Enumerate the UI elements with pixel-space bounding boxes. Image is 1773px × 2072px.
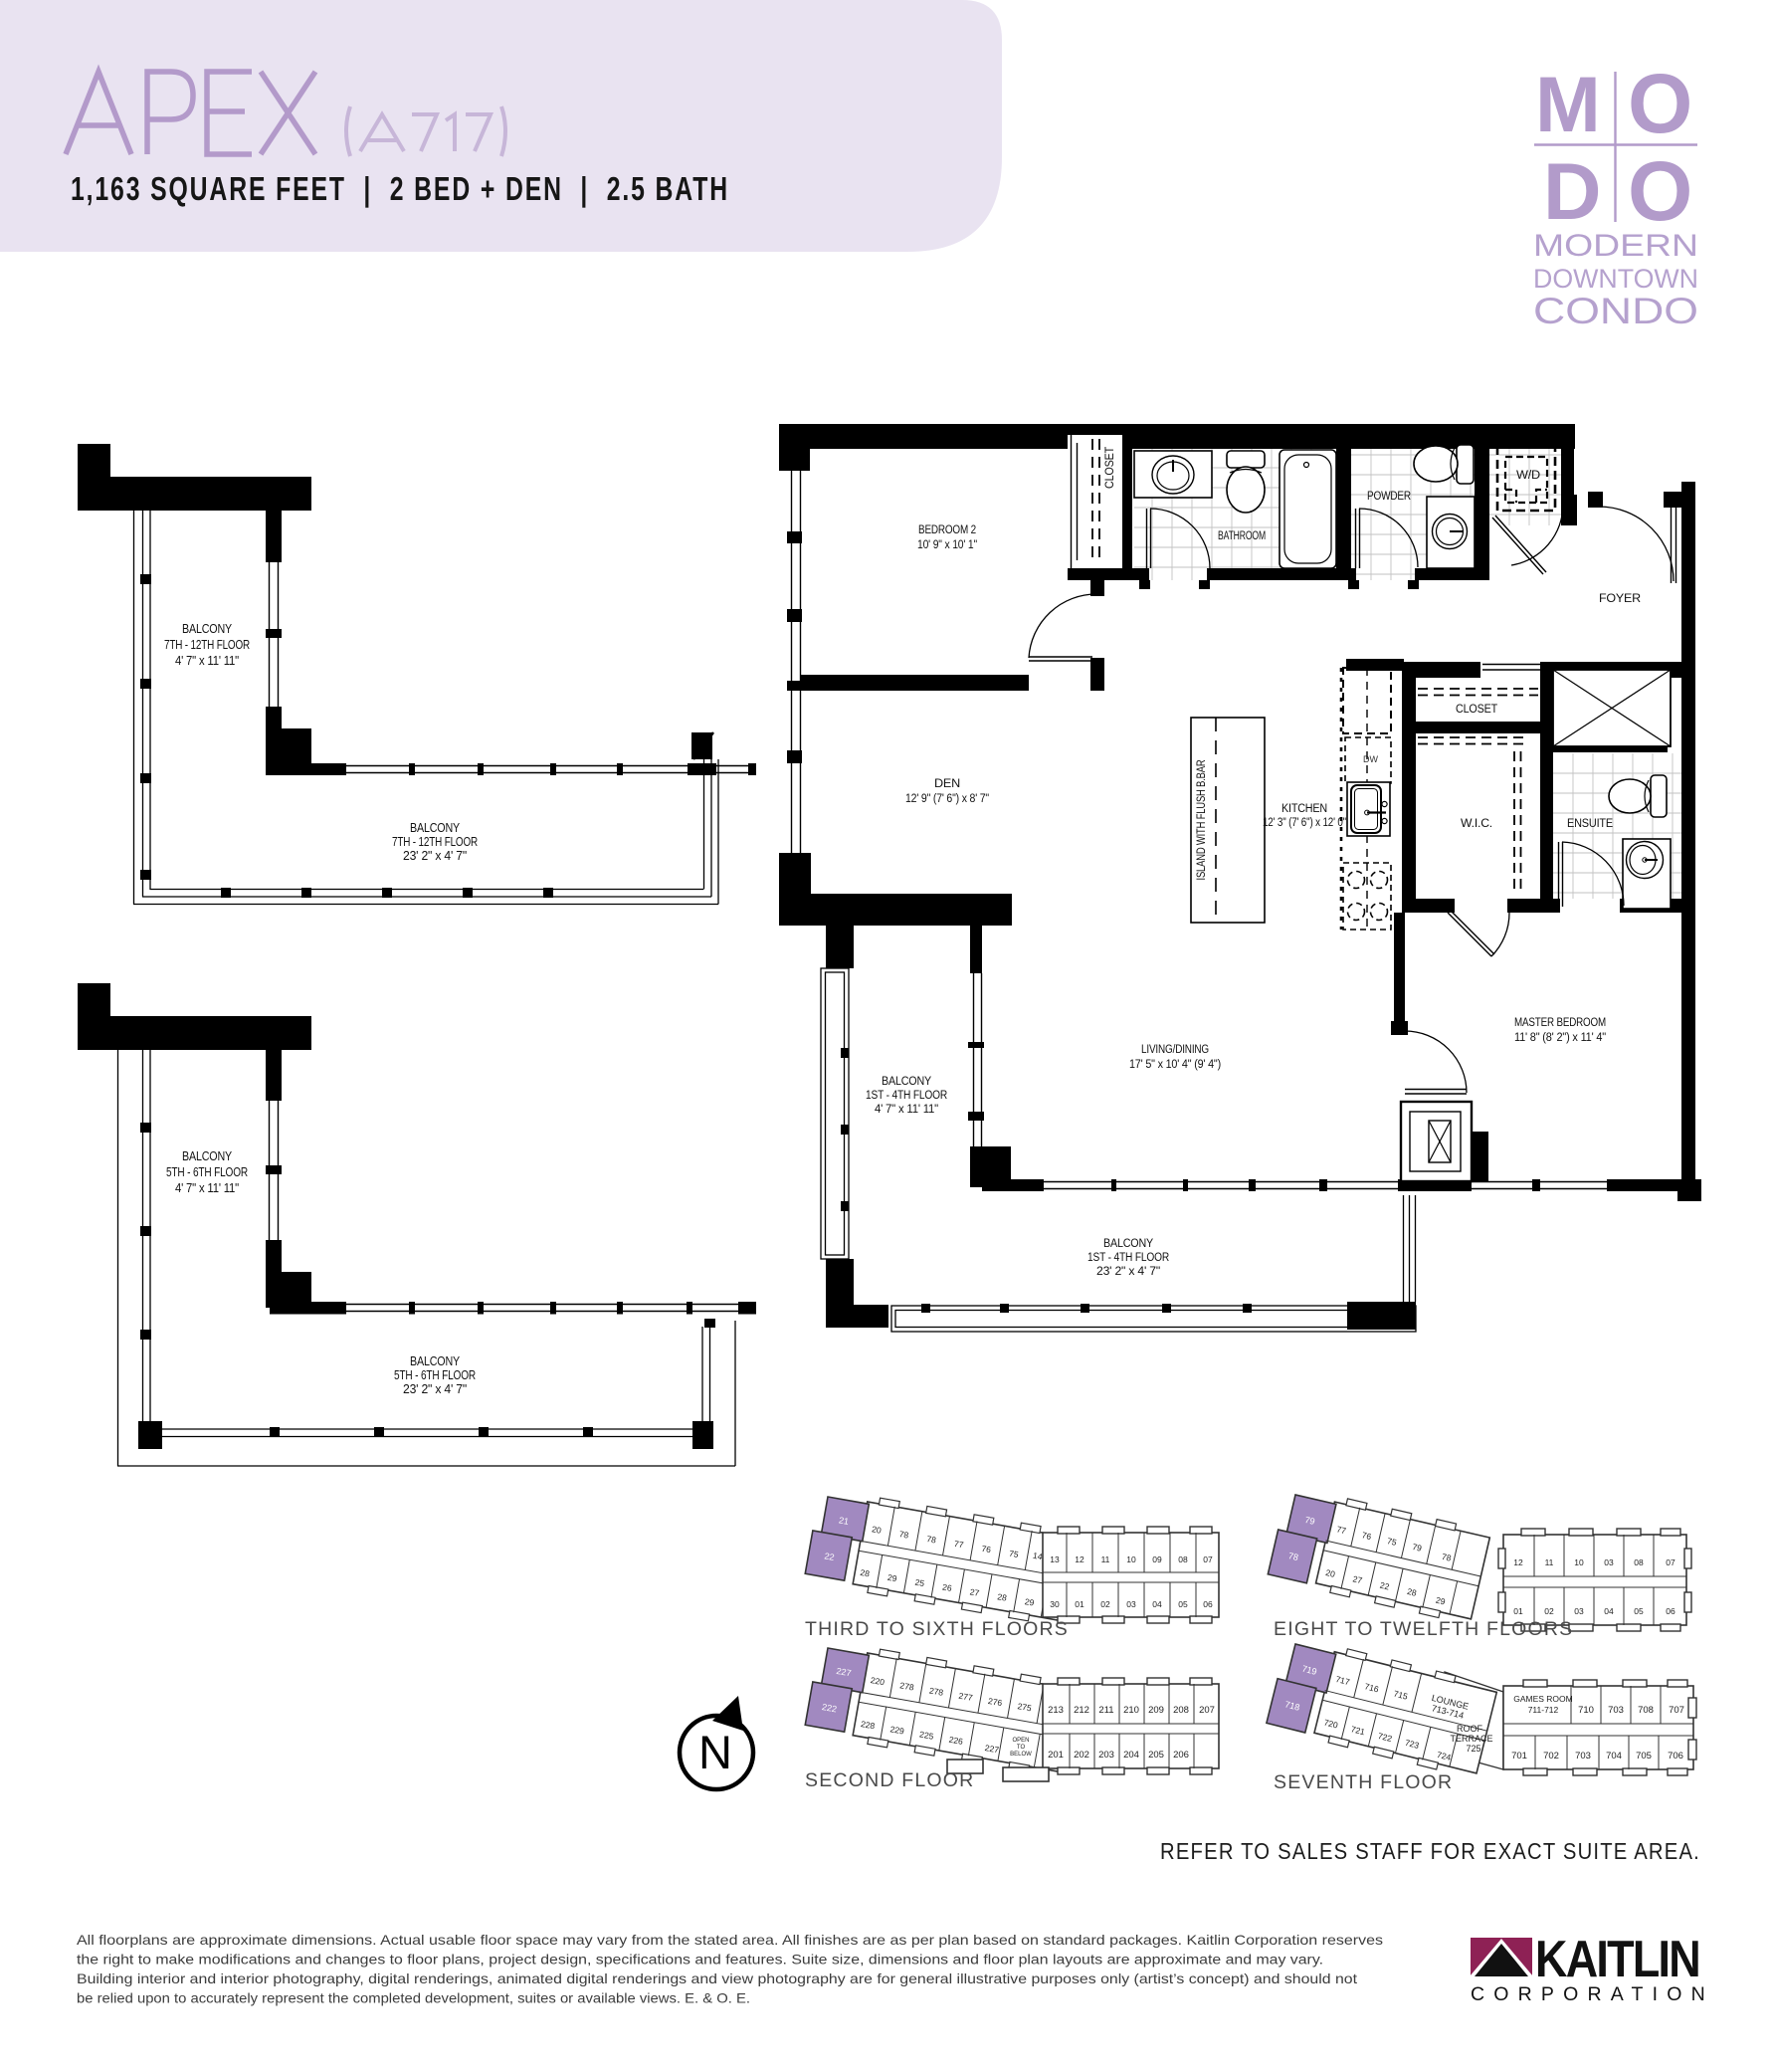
svg-text:MODERN: MODERN <box>1533 227 1698 263</box>
svg-text:17' 5" x 10' 4" (9' 4"): 17' 5" x 10' 4" (9' 4") <box>1129 1057 1221 1071</box>
svg-text:the right to make modification: the right to make modifications and chan… <box>77 1953 1323 1968</box>
svg-text:KITCHEN: KITCHEN <box>1281 801 1327 815</box>
svg-text:203: 203 <box>1098 1750 1114 1761</box>
svg-text:BELOW: BELOW <box>1010 1752 1032 1758</box>
svg-text:1ST - 4TH FLOOR: 1ST - 4TH FLOOR <box>866 1088 947 1102</box>
svg-text:5TH - 6TH FLOOR: 5TH - 6TH FLOOR <box>166 1165 248 1179</box>
svg-text:20: 20 <box>871 1524 882 1536</box>
svg-text:02: 02 <box>1100 1599 1110 1609</box>
svg-text:27: 27 <box>969 1586 980 1598</box>
svg-text:03: 03 <box>1574 1606 1584 1616</box>
svg-text:10: 10 <box>1574 1557 1584 1567</box>
svg-text:208: 208 <box>1173 1705 1189 1716</box>
svg-text:05: 05 <box>1634 1606 1644 1616</box>
svg-text:11: 11 <box>1545 1557 1554 1567</box>
svg-text:213: 213 <box>1048 1705 1064 1716</box>
svg-text:Building interior and interior: Building interior and interior photograp… <box>77 1971 1357 1986</box>
svg-text:GAMES ROOM: GAMES ROOM <box>1513 1694 1573 1704</box>
svg-text:THIRD TO SIXTH FLOORS: THIRD TO SIXTH FLOORS <box>805 1618 1069 1640</box>
svg-text:4' 7" x 11' 11": 4' 7" x 11' 11" <box>875 1102 938 1116</box>
svg-text:02: 02 <box>1544 1606 1554 1616</box>
svg-text:M: M <box>1535 60 1601 148</box>
svg-text:ROOF: ROOF <box>1457 1724 1483 1734</box>
svg-text:O: O <box>1628 144 1692 238</box>
svg-text:704: 704 <box>1606 1751 1622 1761</box>
svg-text:725: 725 <box>1466 1744 1480 1754</box>
svg-text:14: 14 <box>1032 1551 1043 1562</box>
svg-text:05: 05 <box>1178 1599 1188 1609</box>
svg-text:O: O <box>1628 57 1692 150</box>
svg-text:BATHROOM: BATHROOM <box>1218 528 1266 542</box>
svg-text:702: 702 <box>1543 1751 1559 1761</box>
svg-text:209: 209 <box>1148 1705 1164 1716</box>
svg-text:DW: DW <box>1363 754 1378 764</box>
svg-text:13: 13 <box>1050 1554 1060 1564</box>
svg-text:12' 3" (7' 6") x 12' 0": 12' 3" (7' 6") x 12' 0" <box>1263 815 1346 829</box>
svg-text:SEVENTH FLOOR: SEVENTH FLOOR <box>1274 1771 1453 1793</box>
svg-text:CLOSET: CLOSET <box>1102 446 1116 489</box>
svg-text:21: 21 <box>838 1515 850 1527</box>
svg-text:5TH - 6TH FLOOR: 5TH - 6TH FLOOR <box>394 1368 476 1382</box>
svg-text:DEN: DEN <box>934 776 960 790</box>
svg-text:25: 25 <box>914 1577 925 1589</box>
svg-text:4' 7" x 11' 11": 4' 7" x 11' 11" <box>175 1181 239 1195</box>
svg-text:CONDO: CONDO <box>1533 291 1698 331</box>
svg-text:TO: TO <box>1017 1745 1026 1751</box>
svg-text:7TH - 12TH FLOOR: 7TH - 12TH FLOOR <box>392 835 478 849</box>
svg-text:703: 703 <box>1608 1705 1624 1716</box>
svg-text:03: 03 <box>1604 1557 1614 1567</box>
svg-text:28: 28 <box>860 1567 871 1579</box>
svg-text:W.I.C.: W.I.C. <box>1461 816 1492 830</box>
svg-text:26: 26 <box>941 1581 952 1593</box>
svg-text:be relied upon to accurately r: be relied upon to accurately represent t… <box>77 1991 750 2006</box>
svg-text:CLOSET: CLOSET <box>1456 702 1498 716</box>
svg-text:BALCONY: BALCONY <box>182 622 233 636</box>
svg-text:KAITLIN: KAITLIN <box>1535 1931 1699 1988</box>
svg-text:1ST - 4TH FLOOR: 1ST - 4TH FLOOR <box>1087 1250 1169 1264</box>
svg-text:01: 01 <box>1075 1599 1084 1609</box>
svg-text:23' 2" x 4' 7": 23' 2" x 4' 7" <box>403 1382 467 1396</box>
svg-text:07: 07 <box>1666 1557 1675 1567</box>
svg-text:212: 212 <box>1074 1705 1089 1716</box>
svg-text:EIGHT TO TWELFTH FLOORS: EIGHT TO TWELFTH FLOORS <box>1274 1618 1573 1640</box>
svg-text:707: 707 <box>1669 1705 1684 1716</box>
svg-text:7TH - 12TH FLOOR: 7TH - 12TH FLOOR <box>164 638 250 652</box>
svg-text:DOWNTOWN: DOWNTOWN <box>1533 264 1698 294</box>
svg-text:201: 201 <box>1048 1750 1064 1761</box>
svg-text:OPEN: OPEN <box>1012 1738 1029 1744</box>
svg-text:LIVING/DINING: LIVING/DINING <box>1141 1042 1209 1056</box>
svg-text:06: 06 <box>1666 1606 1675 1616</box>
svg-text:78: 78 <box>898 1529 909 1541</box>
svg-text:210: 210 <box>1123 1705 1139 1716</box>
svg-text:206: 206 <box>1173 1750 1189 1761</box>
svg-text:23' 2" x 4' 7": 23' 2" x 4' 7" <box>1096 1264 1160 1278</box>
svg-text:SECOND FLOOR: SECOND FLOOR <box>805 1769 974 1791</box>
svg-text:12: 12 <box>1075 1554 1084 1564</box>
svg-text:08: 08 <box>1178 1554 1188 1564</box>
svg-text:12' 9" (7' 6") x 8' 7": 12' 9" (7' 6") x 8' 7" <box>905 791 989 805</box>
svg-text:703: 703 <box>1575 1751 1591 1761</box>
svg-text:09: 09 <box>1152 1554 1162 1564</box>
svg-text:POWDER: POWDER <box>1367 489 1411 503</box>
svg-text:711-712: 711-712 <box>1528 1705 1559 1715</box>
svg-text:11: 11 <box>1101 1554 1110 1564</box>
svg-text:12: 12 <box>1513 1557 1523 1567</box>
svg-text:10: 10 <box>1126 1554 1136 1564</box>
svg-text:705: 705 <box>1636 1751 1652 1761</box>
svg-text:202: 202 <box>1074 1750 1089 1761</box>
svg-text:BALCONY: BALCONY <box>410 1354 461 1368</box>
svg-text:CORPORATION: CORPORATION <box>1471 1983 1714 2005</box>
svg-text:710: 710 <box>1578 1705 1594 1716</box>
svg-text:29: 29 <box>1024 1596 1035 1608</box>
svg-text:FOYER: FOYER <box>1599 591 1641 605</box>
svg-text:W/D: W/D <box>1516 468 1540 482</box>
svg-text:D: D <box>1543 147 1602 237</box>
svg-text:N: N <box>698 1726 732 1778</box>
svg-text:07: 07 <box>1203 1554 1213 1564</box>
svg-text:BALCONY: BALCONY <box>410 821 461 835</box>
svg-text:75: 75 <box>1008 1549 1019 1560</box>
svg-text:04: 04 <box>1152 1599 1162 1609</box>
svg-text:207: 207 <box>1199 1705 1215 1716</box>
svg-text:708: 708 <box>1638 1705 1654 1716</box>
svg-text:REFER TO SALES STAFF FOR EXACT: REFER TO SALES STAFF FOR EXACT SUITE ARE… <box>1160 1838 1700 1864</box>
svg-text:77: 77 <box>953 1539 964 1551</box>
svg-text:11' 8" (8' 2") x 11' 4": 11' 8" (8' 2") x 11' 4" <box>1514 1030 1606 1044</box>
svg-text:MASTER BEDROOM: MASTER BEDROOM <box>1514 1015 1606 1029</box>
svg-text:211: 211 <box>1098 1705 1113 1716</box>
svg-text:06: 06 <box>1203 1599 1213 1609</box>
svg-text:10' 9" x 10' 1": 10' 9" x 10' 1" <box>917 537 977 551</box>
svg-text:29: 29 <box>886 1572 897 1584</box>
svg-text:All floorplans are approximate: All floorplans are approximate dimension… <box>77 1933 1383 1948</box>
svg-text:BALCONY: BALCONY <box>1103 1236 1153 1250</box>
svg-text:03: 03 <box>1126 1599 1136 1609</box>
svg-text:ENSUITE: ENSUITE <box>1567 816 1613 830</box>
svg-text:TERRACE: TERRACE <box>1450 1734 1492 1744</box>
svg-text:23' 2" x 4' 7": 23' 2" x 4' 7" <box>403 849 467 863</box>
svg-text:30: 30 <box>1050 1599 1060 1609</box>
svg-text:28: 28 <box>997 1591 1008 1603</box>
svg-text:22: 22 <box>824 1551 836 1562</box>
svg-text:706: 706 <box>1668 1751 1683 1761</box>
svg-text:08: 08 <box>1634 1557 1644 1567</box>
svg-text:4' 7" x 11' 11": 4' 7" x 11' 11" <box>175 654 239 668</box>
svg-text:78: 78 <box>926 1534 937 1546</box>
svg-text:76: 76 <box>981 1544 992 1555</box>
svg-text:701: 701 <box>1511 1751 1527 1761</box>
svg-text:04: 04 <box>1604 1606 1614 1616</box>
svg-text:1,163 SQUARE FEET | 2 BED +: 1,163 SQUARE FEET | 2 BED + DEN | 2.5 BA… <box>71 170 729 207</box>
svg-text:204: 204 <box>1123 1750 1139 1761</box>
svg-text:BALCONY: BALCONY <box>182 1149 233 1163</box>
svg-text:BEDROOM 2: BEDROOM 2 <box>918 522 976 536</box>
svg-text:ISLAND WITH FLUSH B.BAR: ISLAND WITH FLUSH B.BAR <box>1194 759 1208 880</box>
svg-text:BALCONY: BALCONY <box>882 1074 931 1088</box>
svg-text:205: 205 <box>1148 1750 1164 1761</box>
svg-text:01: 01 <box>1513 1606 1523 1616</box>
